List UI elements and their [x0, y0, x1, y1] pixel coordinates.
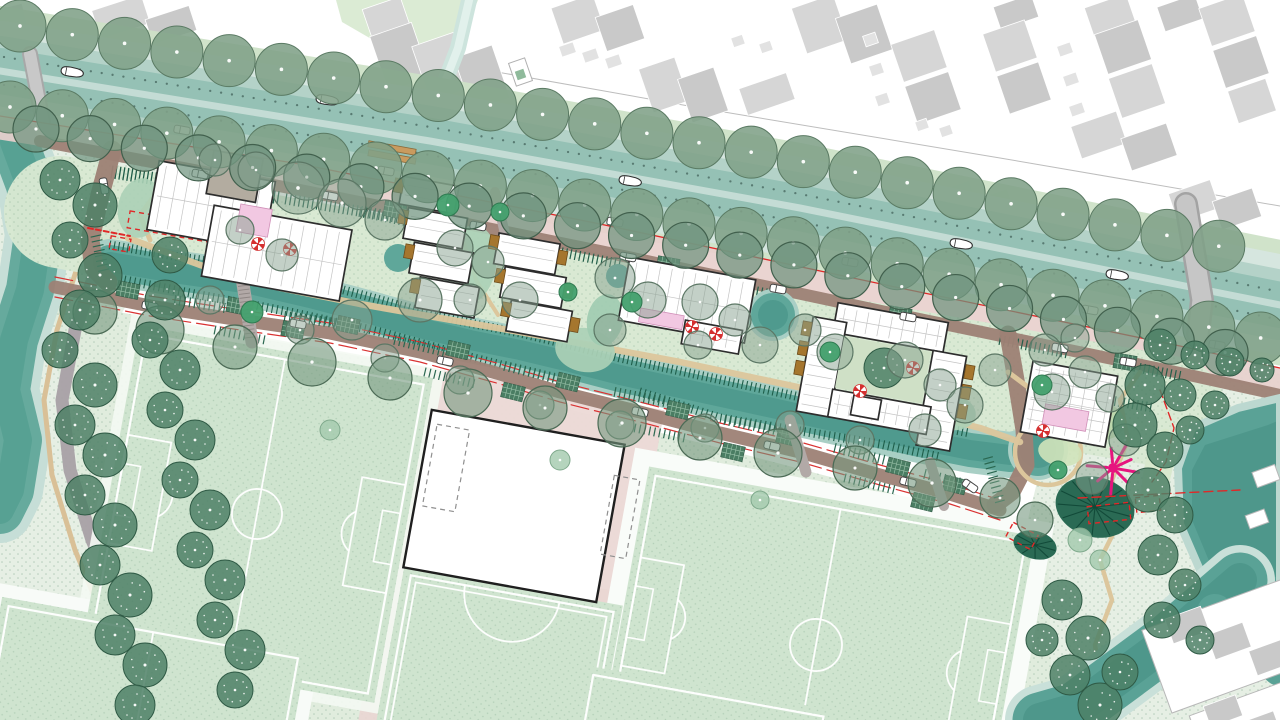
plaza-building — [403, 410, 624, 602]
pond-east-core — [758, 300, 788, 330]
masterplan-svg — [0, 0, 1280, 720]
masterplan-site-plan — [0, 0, 1280, 720]
plan-layers-root — [0, 0, 1280, 720]
